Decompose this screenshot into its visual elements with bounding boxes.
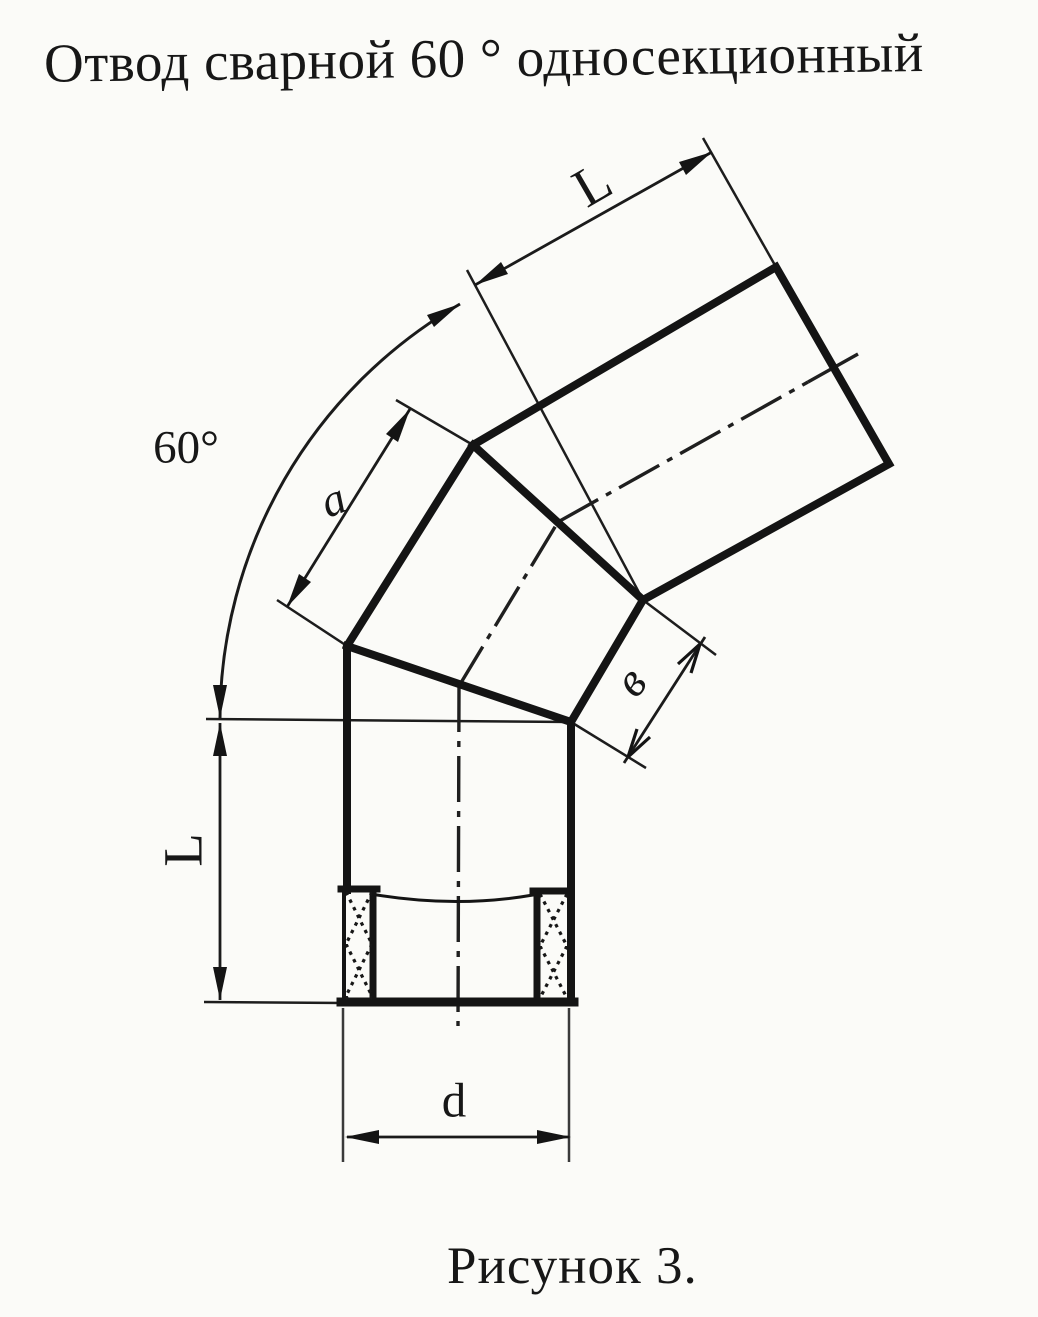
vertical-run-length-label: L [156, 833, 211, 867]
upper-weld-seam [473, 445, 643, 600]
figure-caption: Рисунок 3. [447, 1236, 698, 1296]
vertical-pipe-centerline [458, 686, 459, 1026]
vertical-L-bottom-arrow [213, 967, 227, 1000]
top-L-right-arrow [679, 152, 712, 175]
pipe-outline [341, 267, 889, 1002]
extension-lines [204, 138, 776, 1162]
v-lower-open-arrow [628, 729, 650, 757]
d-right-arrow [537, 1130, 571, 1144]
a-bottom-arrow [287, 574, 311, 607]
top-L-left-arrow [475, 262, 508, 285]
d-left-arrow [345, 1130, 379, 1144]
pipe-diameter-label: d [442, 1076, 467, 1125]
arc-top-arrow [427, 304, 460, 327]
v-upper-open-arrow [678, 644, 700, 673]
elbow-outer-contour [347, 267, 889, 1000]
dimension-lines [220, 152, 712, 1137]
arc-bottom-arrow [213, 685, 227, 718]
centerlines [458, 354, 858, 1026]
elbow-technical-drawing [0, 0, 1038, 1317]
a-top-arrow [386, 409, 410, 442]
arrowheads [213, 152, 712, 1144]
vertical-L-bottom-extension [204, 1002, 345, 1003]
horizontal-reference-line [206, 719, 571, 722]
socket-end-curve [377, 895, 533, 902]
bend-angle-label: 60° [153, 425, 219, 472]
left-wall-hatch [346, 892, 372, 1000]
vertical-L-top-arrow [213, 723, 227, 756]
v-upper-extension [643, 600, 716, 655]
top-L-right-extension [703, 138, 776, 267]
a-top-extension [396, 400, 473, 445]
top-pipe-centerline [558, 382, 808, 522]
right-wall-hatch [540, 894, 567, 1000]
middle-section-centerline [459, 522, 558, 686]
